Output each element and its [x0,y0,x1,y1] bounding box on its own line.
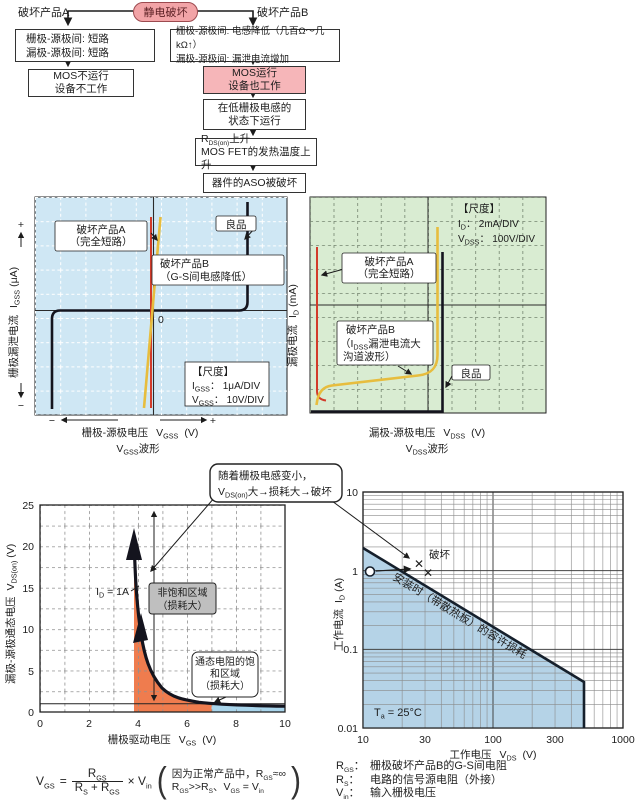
svg-text:100: 100 [484,734,502,746]
gss-origin-label: 0 [158,314,164,326]
callout-line1: 随着栅极电感变小， [218,469,313,482]
svg-text:10: 10 [346,487,358,499]
gss-product-b-label2: （G-S间电感降低） [160,270,252,283]
note-rgs-term: RGS： [336,760,370,774]
formula-times-vin: × Vin [128,774,152,788]
dss-product-a-label2: （完全短路） [358,267,421,280]
svg-text:300: 300 [546,734,564,746]
formula-denominator: RS + RGS [72,781,123,795]
vds-x-ticks: 0 2 4 6 8 10 [37,718,291,730]
note-rs-term: RS： [336,774,370,788]
label-damaged-product-a: 破坏产品A [18,4,69,20]
svg-text:0: 0 [37,718,43,730]
dss-scale-title: 【尺度】 [458,202,500,215]
formula-note-line1: 因为正常产品中，RGS≈∞ [172,768,286,781]
formula-equals: = [60,774,67,788]
note-rs: RS： 电路的信号源电阻（外接） [336,774,507,788]
gss-x-minus: − [49,415,55,427]
formula-note: 因为正常产品中，RGS≈∞ RGS>>RS、VGS = Vin [172,768,286,794]
node-b-symptom-1: 栅极-源极间: 电感降低（几百Ω～几kΩ↑） [176,25,339,53]
node-esd-damage: 静电破坏 [133,2,198,22]
note-rs-desc: 电路的信号源电阻（外接） [370,774,502,788]
note-vin: Vin： 输入栅极电压 [336,787,507,801]
vds-y-axis-label: 漏极-源极通态电压VDS(on)(V) [4,544,19,684]
note-vin-term: Vin： [336,787,370,801]
gss-scale-title: 【尺度】 [192,365,234,378]
svg-text:1: 1 [352,566,358,578]
gss-x-axis-label: 栅极-源极电压VGSS(V) [82,426,199,441]
chart-gate-leakage: 破坏产品A （完全短路） 良品 破坏产品B （G-S间电感降低） 0 【尺度】 … [7,197,287,457]
node-a-symptom-2: 漏极-源极间: 短路 [26,46,154,60]
gss-y-minus: − [18,400,24,412]
gss-y-plus: + [18,219,24,231]
node-b-symptom-2: 漏极-源极间: 漏泄电流增加 [176,53,339,67]
node-b3-line1: 在低栅极电感的 [218,102,292,115]
svg-text:2: 2 [86,718,92,730]
svg-text:10: 10 [22,624,34,636]
vds-region1-label2: （损耗大） [158,599,208,612]
dss-product-b-label2: （IDSS漏泄电流大 [340,337,421,352]
node-b4-line2: MOS FET的发热温度上升 [201,146,316,172]
chart-vds-on: ID = 1A 非饱和区域 （损耗大） 通态电阻的饱 和区域 （损耗大） 25 … [4,497,291,748]
gss-product-a-label2: （完全短路） [70,235,133,248]
formula-note-line2: RGS>>RS、VGS = Vin [172,781,286,794]
chart-soa: 安装时（带散热板）的容许损耗 破坏 ✕ ✕ Ta = 25°C 10 1 0.1… [332,487,635,763]
label-damaged-product-b: 破坏产品B [257,4,308,20]
soa-x-ticks: 10 30 100 300 1000 [357,734,635,746]
node-a2-line2: 设备不工作 [55,83,108,96]
svg-text:6: 6 [184,718,190,730]
gss-product-b-label1: 破坏产品B [160,257,209,270]
svg-text:25: 25 [22,500,34,512]
node-b2-line2: 设备也工作 [228,80,281,93]
svg-text:20: 20 [22,541,34,553]
svg-text:10: 10 [357,734,369,746]
gss-y-axis-label: 栅极漏泄电流IGSS(μA) [7,267,22,378]
node-a2-line1: MOS不运行 [53,70,108,83]
svg-text:0.1: 0.1 [343,644,358,656]
svg-text:10: 10 [279,718,291,730]
svg-text:1000: 1000 [611,734,635,746]
svg-text:5: 5 [28,666,34,678]
node-mos-not-operating: MOS不运行 设备不工作 [28,69,134,97]
gate-voltage-formula: VGS = RGS RS + RGS × Vin ( 因为正常产品中，RGS≈∞… [36,764,301,798]
svg-text:0: 0 [28,707,34,719]
gss-product-a-label1: 破坏产品A [76,223,125,236]
node-mos-operating: MOS运行 设备也工作 [203,66,306,94]
formula-numerator: RGS [88,768,107,781]
node-rdson-rise: RDS(on)上升 MOS FET的发热温度上升 [195,138,317,166]
formula-fraction: RGS RS + RGS [72,768,123,795]
note-vin-desc: 输入栅极电压 [370,787,436,801]
note-rgs: RGS： 栅极破坏产品B的G-S间电阻 [336,760,507,774]
chart-drain-leakage: 【尺度】 ID： 2mA/DIV VDSS： 100V/DIV 破坏产品A （完… [286,197,546,457]
dss-x-axis-label: 漏极-源极电压VDSS(V) [369,426,485,441]
gss-x-plus: + [210,415,216,427]
svg-text:0.01: 0.01 [338,723,359,735]
svg-text:8: 8 [233,718,239,730]
dss-scale-line-i: ID： 2mA/DIV [458,219,519,232]
node-b4-line1: RDS(on)上升 [201,133,316,146]
svg-text:30: 30 [419,734,431,746]
dss-product-b-label1: 破坏产品B [346,323,395,336]
soa-fail-label: 破坏 [429,548,450,561]
soa-operating-point [366,567,375,576]
dss-product-b-label3: 沟道波形） [343,350,396,363]
svg-text:15: 15 [22,583,34,595]
formula-lhs: VGS [36,774,55,788]
soa-y-axis-label: 工作电流ID(A) [332,578,347,651]
soa-fail-cross-2: ✕ [423,566,433,580]
node-low-gate-resistance: 在低栅极电感的 状态下运行 [203,99,306,130]
callout-gate-resistance: 随着栅极电感变小， VDS(on)大→损耗大→破坏 [210,464,342,502]
oscillogram-panels: 破坏产品A （完全短路） 良品 破坏产品B （G-S间电感降低） 0 【尺度】 … [0,195,640,457]
note-rgs-desc: 栅极破坏产品B的G-S间电阻 [370,760,507,774]
svg-text:4: 4 [135,718,141,730]
dss-product-a-label1: 破坏产品A [364,255,413,268]
bottom-panels: ID = 1A 非饱和区域 （损耗大） 通态电阻的饱 和区域 （损耗大） 25 … [0,455,640,807]
node-b5-line: 器件的ASO被破坏 [212,176,297,190]
page: 破坏产品A 破坏产品B 静电破坏 栅极-源极间: 短路 漏极-源极间: 短路 M… [0,0,640,807]
node-b-symptoms: 栅极-源极间: 电感降低（几百Ω～几kΩ↑） 漏极-源极间: 漏泄电流增加 [170,29,340,62]
vds-region1-label1: 非饱和区域 [158,586,208,599]
node-b2-line1: MOS运行 [232,67,277,80]
node-a-symptom-1: 栅极-源极间: 短路 [26,32,154,46]
node-b3-line2: 状态下运行 [228,115,281,128]
vds-y-ticks: 25 20 15 10 5 0 [22,500,34,719]
paren-close: ) [291,761,301,802]
vds-x-axis-label: 栅极驱动电压VGS(V) [108,733,216,748]
vds-region2-label3: （损耗大） [200,679,250,692]
vds-region2-label1: 通态电阻的饱 [195,655,255,668]
dss-y-axis-label: 漏极电流ID(mA) [286,284,301,367]
paren-open: ( [157,761,167,802]
gss-good-label: 良品 [226,218,247,231]
node-a-symptoms: 栅极-源极间: 短路 漏极-源极间: 短路 [15,29,155,62]
dss-good-label: 良品 [461,367,482,380]
vds-region2-label2: 和区域 [210,667,240,680]
node-aso-destroyed: 器件的ASO被破坏 [203,173,306,193]
symbol-notes: RGS： 栅极破坏产品B的G-S间电阻 RS： 电路的信号源电阻（外接） Vin… [336,760,507,801]
